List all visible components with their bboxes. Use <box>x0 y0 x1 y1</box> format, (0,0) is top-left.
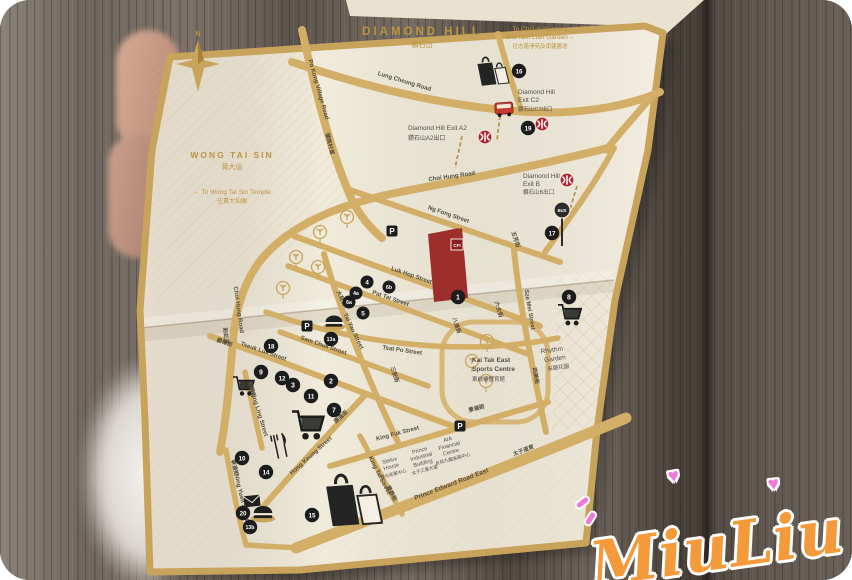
svg-text:4a: 4a <box>353 291 359 297</box>
kai-tak-zh: 東啟德體育館 <box>472 375 506 383</box>
landmark-logo: CFI <box>453 243 460 248</box>
svg-text:1: 1 <box>456 295 460 302</box>
marker-15: 15 <box>305 508 319 522</box>
exit-c2-line1: Diamond Hill <box>518 89 555 96</box>
svg-text:8: 8 <box>567 295 571 302</box>
map-title-en: DIAMOND HILL <box>362 26 482 38</box>
kai-tak-line1: Kai Tak East <box>472 357 511 364</box>
svg-text:19: 19 <box>525 125 532 132</box>
heart-icon: ♥ <box>767 473 781 496</box>
heart-icon: ♥ <box>666 465 681 489</box>
svg-text:P: P <box>304 322 310 331</box>
marker-17: 17 <box>545 226 559 240</box>
svg-text:14: 14 <box>263 469 270 476</box>
exit-c2-zh: 鑽石山C2出口 <box>518 105 553 113</box>
svg-text:7: 7 <box>332 408 336 415</box>
marker-2: 2 <box>324 374 338 388</box>
svg-text:3: 3 <box>291 383 295 390</box>
map-title-zh: 鑽石山 <box>412 40 433 49</box>
compass-north-label: N <box>195 31 200 38</box>
marker-20: 20 <box>236 506 250 520</box>
svg-text:9: 9 <box>259 370 263 377</box>
marker-12: 12 <box>275 371 289 385</box>
note-chi-lin-zh: 往志蓮淨苑及南蓮園池 <box>512 42 568 50</box>
note-wts-temple-en: ← To Wong Tai Sin Temple <box>193 189 271 196</box>
marker-6b: 6b <box>383 281 396 294</box>
exit-b-line1: Diamond Hill <box>523 173 560 180</box>
svg-text:16: 16 <box>516 68 523 75</box>
marker-18: 18 <box>264 339 278 353</box>
svg-text:11: 11 <box>308 393 315 400</box>
marker-14: 14 <box>259 465 273 479</box>
svg-text:P: P <box>457 422 463 431</box>
exit-b-zh: 鑽石山B出口 <box>523 188 554 196</box>
kai-tak-line2: Sports Centre <box>472 366 515 373</box>
marker-7: 7 <box>327 403 341 417</box>
marker-19: 19 <box>521 121 535 135</box>
exit-a2-en: Diamond Hill Exit A2 <box>408 125 467 132</box>
marker-13a: 13a <box>324 332 338 346</box>
svg-text:4: 4 <box>365 279 369 286</box>
parking-icon: P <box>455 421 466 432</box>
svg-text:6b: 6b <box>386 285 392 291</box>
landmark-building: CFI <box>428 228 468 302</box>
parking-icon: P <box>387 226 398 237</box>
marker-13b: 13b <box>243 520 257 534</box>
svg-text:20: 20 <box>240 510 247 517</box>
note-chi-lin-line1: To Chi Lin Nunnery <box>512 26 568 33</box>
svg-text:18: 18 <box>268 343 275 350</box>
marker-6a: 6a <box>343 296 356 309</box>
mtr-station-icon <box>560 173 574 187</box>
marker-5: 5 <box>357 307 370 320</box>
parking-icon: P <box>302 321 313 332</box>
svg-text:6a: 6a <box>346 300 352 306</box>
marker-8: 8 <box>562 290 576 304</box>
svg-text:17: 17 <box>549 230 556 237</box>
svg-text:10: 10 <box>239 455 246 462</box>
mtr-station-icon <box>535 117 549 131</box>
region-wong-tai-sin-zh: 黃大仙 <box>222 162 243 171</box>
note-wts-temple-zh: 往黃大仙廟 <box>217 197 247 205</box>
photo-of-paper-map: N CFI BUS P <box>0 0 852 580</box>
bus-sign-label: BUS <box>558 208 567 213</box>
marker-11: 11 <box>304 389 318 403</box>
exit-a2-zh: 鑽石山A2出口 <box>408 134 445 142</box>
svg-text:P: P <box>389 227 395 236</box>
region-wong-tai-sin-en: WONG TAI SIN <box>190 150 273 160</box>
signature-text: MiuLiu <box>585 494 848 580</box>
svg-text:5: 5 <box>361 310 365 317</box>
marker-16: 16 <box>512 64 526 78</box>
svg-text:15: 15 <box>309 512 316 519</box>
marker-4: 4 <box>361 276 374 289</box>
marker-10: 10 <box>235 451 249 465</box>
svg-text:13a: 13a <box>327 337 336 343</box>
exit-b-line2: Exit B <box>523 181 540 188</box>
accent-mark <box>576 497 589 509</box>
marker-1: 1 <box>451 290 465 304</box>
mtr-station-icon <box>478 130 492 144</box>
svg-text:12: 12 <box>279 375 286 382</box>
marker-9: 9 <box>254 365 268 379</box>
note-chi-lin-line2: and Nan Lian Garden→ <box>506 34 575 41</box>
watermark-signature: MiuLiu ♥ ♥ <box>572 460 852 580</box>
svg-text:13b: 13b <box>246 525 255 531</box>
svg-text:2: 2 <box>329 379 333 386</box>
accent-mark <box>585 512 596 526</box>
exit-c2-line2: Exit C2 <box>518 97 539 104</box>
